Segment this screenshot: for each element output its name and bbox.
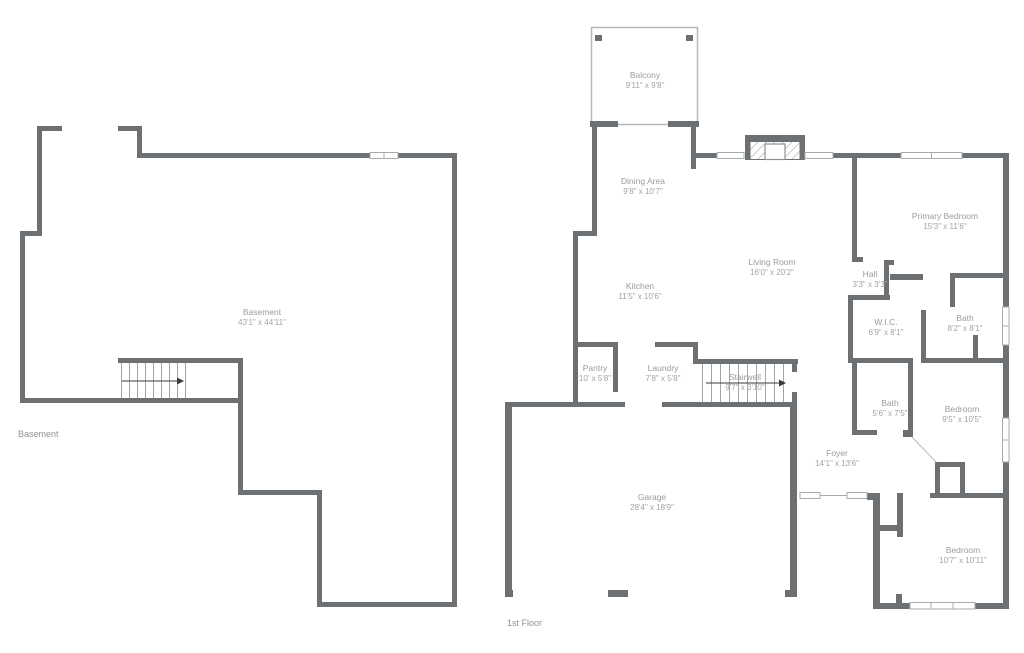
basement-walls — [20, 126, 457, 607]
room-label-wic: W.I.C. 6'9" x 8'1" — [869, 317, 904, 338]
room-label-balcony: Balcony 9'11" x 9'8" — [626, 70, 665, 91]
fireplace — [745, 135, 805, 160]
room-label-foyer: Foyer 14'1" x 13'6" — [815, 448, 859, 469]
room-label-pantry: Pantry 10' x 5'8" — [579, 363, 611, 384]
basement-floor-title: Basement — [18, 429, 59, 440]
room-label-bedroom-bottom: Bedroom 10'7" x 10'11" — [939, 545, 987, 566]
room-label-bath-upper: Bath 8'2" x 8'1" — [948, 313, 983, 334]
room-label-bedroom-mid: Bedroom 9'5" x 10'5" — [942, 404, 981, 425]
room-label-living-room: Living Room 16'0" x 20'2" — [748, 257, 795, 278]
basement-window — [370, 153, 398, 159]
first-floor-title: 1st Floor — [507, 618, 542, 629]
room-label-bath-lower: Bath 5'6" x 7'5" — [873, 398, 908, 419]
room-label-laundry: Laundry 7'8" x 5'8" — [646, 363, 681, 384]
floorplan-page: Balcony 9'11" x 9'8" Dining Area 9'8" x … — [0, 0, 1024, 653]
room-label-kitchen: Kitchen 11'5" x 10'6" — [618, 281, 661, 302]
room-label-primary-bedroom: Primary Bedroom 15'3" x 11'6" — [912, 211, 978, 232]
room-label-basement: Basement 43'1" x 44'11" — [238, 307, 286, 328]
room-label-hall: Hall 3'3" x 3'3" — [853, 269, 888, 290]
room-label-dining-area: Dining Area 9'8" x 10'7" — [621, 176, 665, 197]
room-label-garage: Garage 28'4" x 18'9" — [630, 492, 674, 513]
room-label-stairwell: Stairwell 9'7" x 3'10" — [725, 372, 764, 393]
bath-door-swing — [912, 437, 936, 462]
basement-stairs — [122, 363, 186, 398]
